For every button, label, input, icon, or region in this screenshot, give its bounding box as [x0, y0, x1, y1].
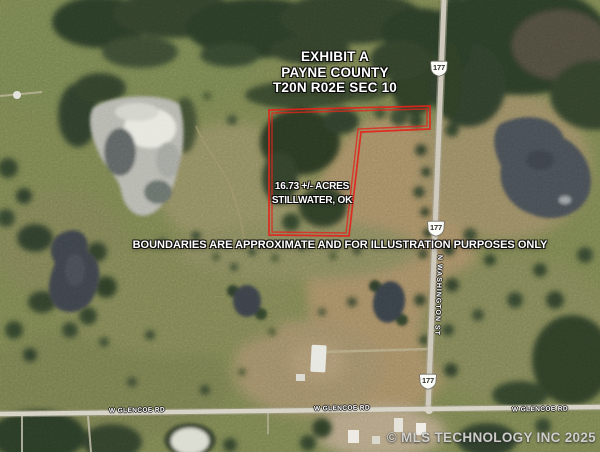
- parcel-acreage: 16.73 +/- ACRES: [262, 180, 362, 194]
- parcel-map[interactable]: EXHIBIT A PAYNE COUNTY T20N R02E SEC 10 …: [0, 0, 600, 452]
- exhibit-title-line1: EXHIBIT A: [235, 49, 435, 65]
- parcel-boundary-outline: [269, 106, 430, 236]
- exhibit-title: EXHIBIT A PAYNE COUNTY T20N R02E SEC 10: [235, 49, 435, 96]
- us-highway-177-shield: 177: [418, 373, 438, 390]
- road-label-w-glencoe-rd: W GLENCOE RD: [500, 405, 580, 413]
- exhibit-title-line2: PAYNE COUNTY: [235, 65, 435, 81]
- parcel-acreage-label: 16.73 +/- ACRES STILLWATER, OK: [262, 180, 362, 208]
- highway-route-number: 177: [429, 61, 449, 77]
- road-label-w-glencoe-rd: W GLENCOE RD: [302, 404, 382, 412]
- us-highway-177-shield: 177: [429, 60, 449, 77]
- highway-route-number: 177: [418, 374, 438, 390]
- parcel-city: STILLWATER, OK: [262, 194, 362, 208]
- road-label-w-glencoe-rd: W GLENCOE RD: [97, 406, 177, 414]
- highway-route-number: 177: [426, 221, 446, 237]
- copyright-watermark: © MLS TECHNOLOGY INC 2025: [387, 430, 596, 445]
- parcel-boundary-inner-line: [272, 109, 427, 233]
- us-highway-177-shield: 177: [426, 220, 446, 237]
- exhibit-title-line3: T20N R02E SEC 10: [235, 80, 435, 96]
- disclaimer-text: BOUNDARIES ARE APPROXIMATE AND FOR ILLUS…: [40, 239, 600, 251]
